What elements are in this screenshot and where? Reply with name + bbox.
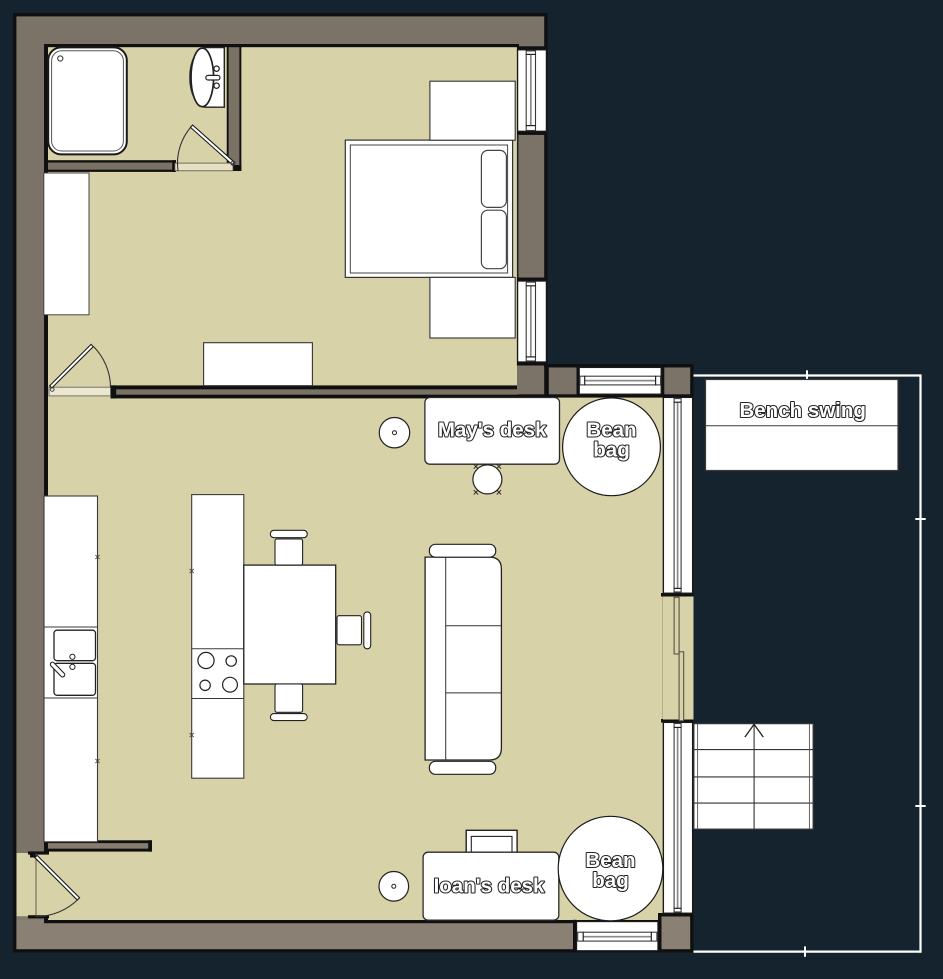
svg-text:Bench swing: Bench swing [739, 399, 865, 422]
svg-text:bag: bag [593, 439, 629, 462]
svg-text:bag: bag [592, 869, 628, 892]
svg-text:May's desk: May's desk [438, 419, 547, 442]
svg-text:Ioan's desk: Ioan's desk [434, 875, 545, 898]
